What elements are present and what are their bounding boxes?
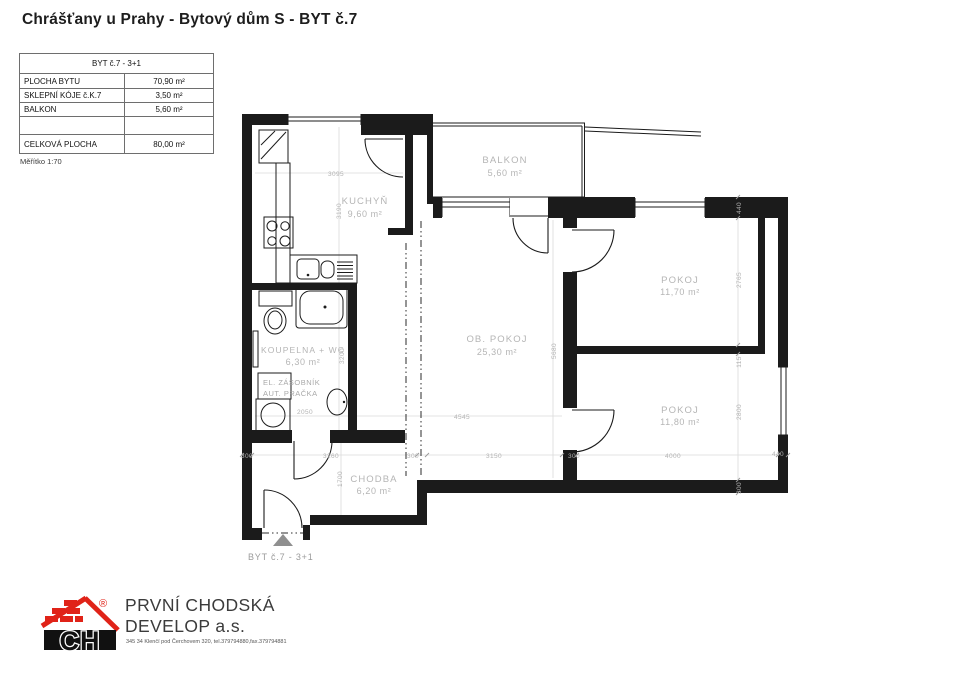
dimension-label: 2765 <box>736 272 743 288</box>
dimension-label: 115 <box>736 356 743 368</box>
room-label-koupelna: KOUPELNA + WC <box>261 345 345 355</box>
room-label-chodba: CHODBA <box>350 474 397 485</box>
bedroom1-door <box>572 230 614 272</box>
dimension-label: 440 <box>736 202 743 214</box>
logo-text: CH <box>60 626 101 656</box>
dimension-label: 300 <box>568 453 580 460</box>
bedroom2-window <box>778 367 788 435</box>
dimension-label: 1700 <box>337 471 344 487</box>
entrance-door <box>264 490 302 528</box>
living-room-window <box>442 197 510 218</box>
balcony-door <box>513 218 548 253</box>
stove <box>264 217 293 248</box>
appliance-label-washer: AUT. PRAČKA <box>263 389 318 398</box>
dimension-label: 440 <box>772 451 784 458</box>
kitchen-door <box>365 139 403 177</box>
kitchen-sink <box>290 255 357 283</box>
dimension-label: 3190 <box>336 203 343 219</box>
company-name-line1: PRVNÍ CHODSKÁ <box>125 595 275 616</box>
company-name: PRVNÍ CHODSKÁ DEVELOP a.s. <box>125 595 275 637</box>
dimension-label: 5680 <box>551 343 558 359</box>
dimension-label: 4545 <box>454 414 470 421</box>
registered-mark: ® <box>99 598 107 610</box>
dimension-label: 3200 <box>339 348 346 364</box>
room-area-pokoj2: 11,80 m² <box>660 417 700 427</box>
room-label-pokoj1: POKOJ <box>661 275 699 286</box>
dimension-label: 300 <box>407 453 419 460</box>
room-label-balkon: BALKON <box>482 155 527 166</box>
windows <box>288 114 788 435</box>
heater <box>253 331 258 367</box>
bedroom2-door <box>572 410 614 452</box>
washing-machine <box>256 399 290 432</box>
company-name-line2: DEVELOP a.s. <box>125 616 275 637</box>
room-area-chodba: 6,20 m² <box>357 486 392 496</box>
balcony-railing <box>428 123 702 197</box>
room-label-pokoj2: POKOJ <box>661 405 699 416</box>
floor-plan-svg: KUCHYŇ 9,60 m² BALKON 5,60 m² OB. POKOJ … <box>0 0 960 678</box>
washbasin <box>327 389 347 415</box>
dimension-label: 4000 <box>665 453 681 460</box>
bathroom-door <box>294 441 332 479</box>
dimension-label: 3150 <box>486 453 502 460</box>
dimension-label: 2050 <box>297 409 313 416</box>
appliance-label-boiler: EL. ZÁSOBNÍK <box>263 378 320 387</box>
fridge <box>259 130 288 163</box>
dimension-label: 2800 <box>736 404 743 420</box>
dimension-label: 300 <box>736 482 743 494</box>
room-area-balkon: 5,60 m² <box>488 168 523 178</box>
room-label-kuchyn: KUCHYŇ <box>342 196 389 207</box>
balcony-door-opening <box>510 197 548 218</box>
dimension-label: 3095 <box>328 171 344 178</box>
room-area-koupelna: 6,30 m² <box>286 357 321 367</box>
toilet <box>259 291 292 334</box>
dimension-label: 300 <box>241 453 253 460</box>
entrance-triangle-icon <box>273 534 293 546</box>
dimension-label: 3260 <box>323 453 339 460</box>
kitchen-window <box>288 114 361 125</box>
bedroom1-window <box>635 197 705 218</box>
room-area-pokoj1: 11,70 m² <box>660 287 700 297</box>
company-logo: ® CH <box>42 598 118 656</box>
room-label-ob-pokoj: OB. POKOJ <box>466 334 527 345</box>
entrance-label: BYT č.7 - 3+1 <box>248 552 314 562</box>
room-area-kuchyn: 9,60 m² <box>348 209 383 219</box>
room-area-ob-pokoj: 25,30 m² <box>477 347 517 357</box>
company-address: 345 34 Klenčí pod Čerchovem 320, tel.379… <box>126 639 287 645</box>
